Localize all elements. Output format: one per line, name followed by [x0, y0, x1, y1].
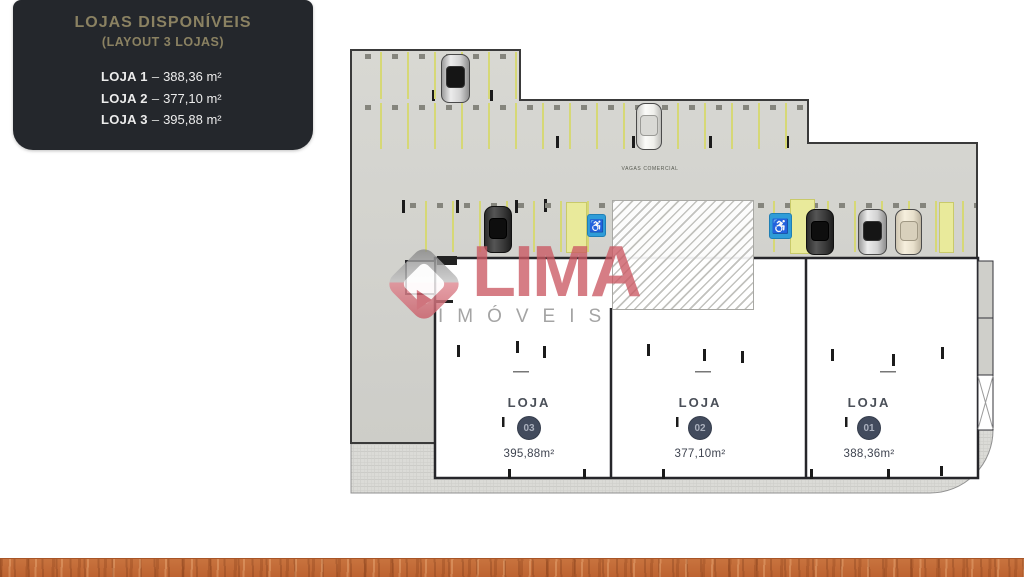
panel-title: LOJAS DISPONÍVEIS — [13, 14, 313, 32]
aisle-label: VAGAS COMERCIAL — [580, 166, 720, 172]
accessible-parking-icon: ♿ — [769, 213, 792, 239]
car-icon — [636, 103, 662, 150]
parking-row-top — [355, 52, 518, 99]
store-area: 395,88m² — [480, 448, 578, 460]
store-list: LOJA 1–388,36 m² LOJA 2–377,10 m² LOJA 3… — [101, 69, 303, 134]
car-icon — [806, 209, 834, 255]
list-item: LOJA 2–377,10 m² — [101, 91, 303, 113]
list-item: LOJA 3–395,88 m² — [101, 112, 303, 134]
accessible-parking-icon: ♿ — [587, 214, 606, 237]
stair-shaft — [978, 261, 993, 430]
store-number-badge: 02 — [688, 416, 712, 440]
store-name: LOJA — [651, 395, 749, 410]
store-area: 388,36m² — [820, 448, 918, 460]
store-name: LOJA — [820, 395, 918, 410]
store-loja-01: LOJA 01 388,36m² — [820, 395, 918, 460]
wall-chunk — [437, 256, 457, 265]
store-loja-03: LOJA 03 395,88m² — [480, 395, 578, 460]
wall-segment — [435, 300, 453, 303]
store-number-badge: 01 — [857, 416, 881, 440]
store-loja-02: LOJA 02 377,10m² — [651, 395, 749, 460]
car-icon — [484, 206, 512, 253]
panel-subtitle: (LAYOUT 3 LOJAS) — [13, 35, 313, 49]
yellow-stall — [939, 202, 954, 253]
ramp-hatch-area — [612, 200, 754, 310]
list-item: LOJA 1–388,36 m² — [101, 69, 303, 91]
store-name: LOJA — [480, 395, 578, 410]
utility-room — [406, 261, 435, 294]
car-icon — [895, 209, 922, 255]
parking-row-second — [355, 103, 805, 149]
store-area: 377,10m² — [651, 448, 749, 460]
car-icon — [441, 54, 470, 103]
wood-texture-bar — [0, 558, 1024, 577]
yellow-stall — [566, 202, 587, 253]
car-icon — [858, 209, 887, 255]
available-stores-panel: LOJAS DISPONÍVEIS (LAYOUT 3 LOJAS) LOJA … — [13, 0, 313, 150]
store-number-badge: 03 — [517, 416, 541, 440]
